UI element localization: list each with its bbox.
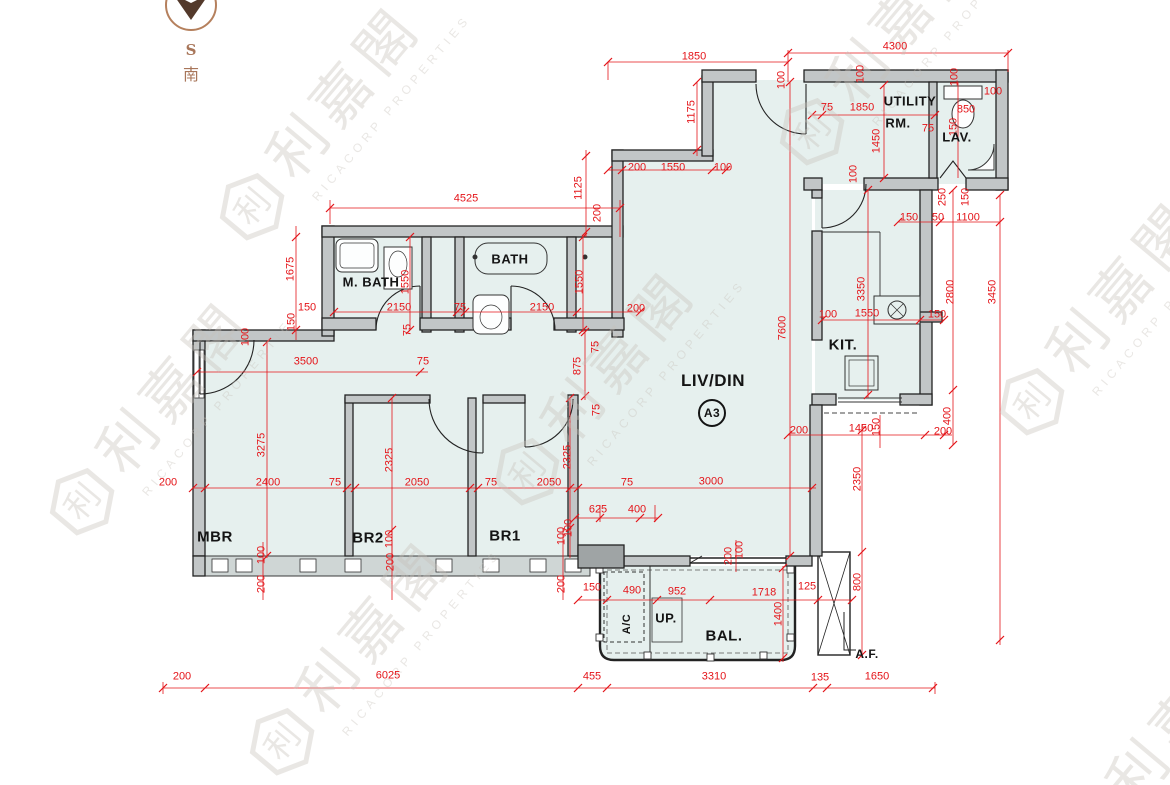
floorplan-canvas: 利利嘉閣RICACORP PROPERTIES利利嘉閣RICACORP PROP… xyxy=(0,0,1170,785)
balcony-step xyxy=(652,598,682,642)
kitchen-appliance xyxy=(845,356,878,390)
balcony xyxy=(596,556,795,661)
floorplan-drawing xyxy=(0,0,1170,785)
lav-toilet-tank xyxy=(944,86,982,99)
mbath-sink xyxy=(384,247,412,289)
compass-south-char: 南 xyxy=(158,61,224,85)
structural-column xyxy=(578,545,624,568)
mbath-tub xyxy=(336,239,378,272)
bath-toilet xyxy=(473,295,509,334)
compass-south-letter: S xyxy=(158,41,224,59)
bath-tub xyxy=(475,243,547,274)
lav-toilet xyxy=(952,100,974,128)
compass-icon xyxy=(158,0,224,34)
af-feature xyxy=(818,552,856,655)
compass: S 南 xyxy=(158,0,224,85)
